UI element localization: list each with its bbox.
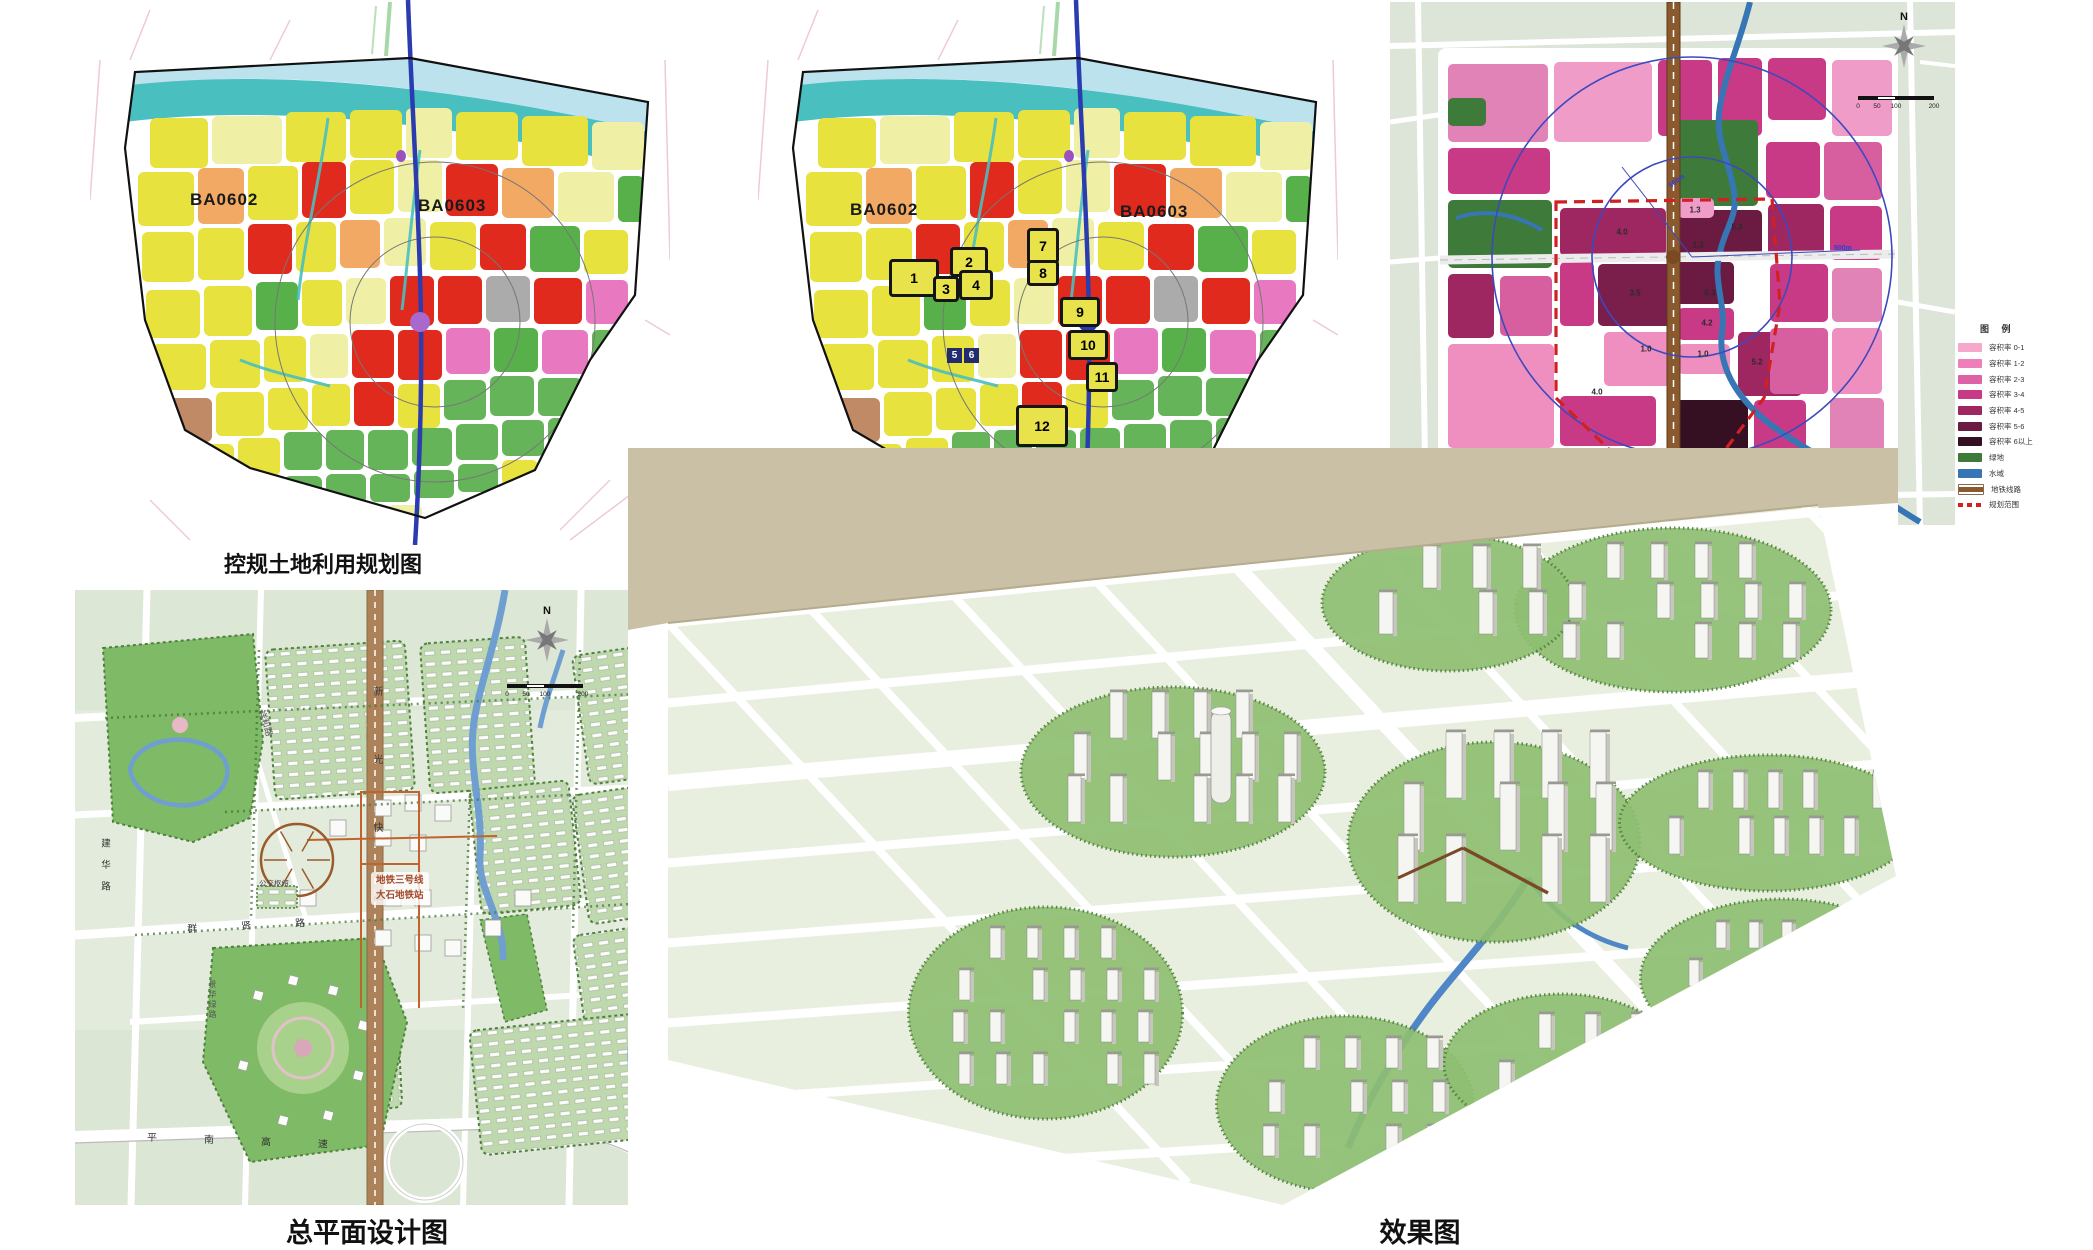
far-value: 4.0 [1591, 388, 1602, 397]
north-compass: N [1882, 12, 1926, 68]
scale-bar: 0 50 100 200 [1858, 96, 1942, 112]
parcel-number-7: 7 [1027, 228, 1059, 264]
far-value: 1.3 [1692, 241, 1703, 250]
intensity-legend: 图 例 容积率 0-1 容积率 1-2 容积率 2-3 容积率 3-4 容积率 … [1958, 322, 2090, 513]
parcel-number-12: 12 [1016, 405, 1068, 447]
legend-item: 规划范围 [1958, 497, 2090, 513]
north-label: N [1882, 12, 1926, 23]
caption-regulatory-plan: 控规土地利用规划图 [123, 547, 523, 579]
far-value: 1.0 [1640, 345, 1651, 354]
radius-label: 500m [1834, 245, 1852, 252]
legend-swatch [1958, 469, 1982, 478]
road-label-xinguang-expressway: 新光快速 [369, 686, 384, 958]
bus-hub-label: 公交枢纽 [259, 878, 289, 889]
legend-item: 绿地 [1958, 450, 2090, 466]
far-value: 5.3 [1731, 223, 1742, 232]
legend-swatch [1958, 359, 1982, 368]
parcel-number-5: 5 [947, 348, 962, 363]
legend-swatch [1958, 500, 1982, 509]
legend-item: 容积率 5-6 [1958, 418, 2090, 434]
metro-station-name: 大石地铁站 [376, 889, 424, 904]
legend-item: 水域 [1958, 466, 2090, 482]
parcel-number-6: 6 [964, 348, 979, 363]
rendering-graphic [628, 448, 1898, 1205]
parcel-number-9: 9 [1060, 297, 1100, 327]
legend-swatch [1958, 453, 1982, 462]
block-label-ba0602: BA0602 [850, 200, 918, 220]
north-compass: N [525, 606, 569, 662]
metro-station-label: 地铁三号线 大石地铁站 [371, 872, 429, 905]
legend-swatch [1958, 343, 1982, 352]
legend-swatch [1958, 406, 1982, 415]
regulatory-plan-panel: BA0602 BA0603 [90, 0, 670, 545]
parcel-number-1: 1 [889, 259, 939, 297]
far-value: 5.3 [1704, 289, 1715, 298]
legend-item: 容积率 3-4 [1958, 387, 2090, 403]
legend-item: 容积率 2-3 [1958, 371, 2090, 387]
legend-swatch [1958, 437, 1982, 446]
far-value: 1.0 [1697, 350, 1708, 359]
far-value: 1.3 [1689, 206, 1700, 215]
planning-sheet: BA0602 BA0603 控规土地利用规划图 BA0602 BA0603 1 … [0, 0, 2093, 1250]
compass-rose-icon [1882, 24, 1926, 68]
legend-item: 容积率 4-5 [1958, 403, 2090, 419]
metro-line-name: 地铁三号线 [376, 874, 424, 889]
far-value: 4.2 [1701, 319, 1712, 328]
legend-swatch [1958, 390, 1982, 399]
block-label-ba0603: BA0603 [1120, 202, 1188, 222]
road-label-jianhua: 建华路 [97, 838, 111, 903]
parcel-number-11: 11 [1086, 362, 1118, 392]
intensity-zoning-panel: 4.0 5.3 1.3 1.3 3.5 5.3 4.2 1.0 1.0 5.2 … [1390, 2, 1955, 525]
parcel-number-8: 8 [1027, 260, 1059, 286]
compass-rose-icon [525, 618, 569, 662]
rendering-panel [628, 448, 1898, 1205]
far-value: 3.5 [1629, 289, 1640, 298]
parcel-number-3: 3 [933, 276, 959, 302]
road-label-jinghua: 景华绿路 [207, 980, 218, 1020]
caption-rendering: 效果图 [1220, 1211, 1620, 1250]
parcel-number-10: 10 [1068, 330, 1108, 360]
block-label-ba0603: BA0603 [418, 196, 486, 216]
legend-item: 地铁线路 [1958, 481, 2090, 497]
regulatory-plan-map-graphic [90, 0, 670, 545]
intensity-zoning-map-graphic [1390, 2, 1955, 525]
scale-bar: 0 50 100 200 [507, 684, 591, 700]
legend-item: 容积率 6以上 [1958, 434, 2090, 450]
legend-swatch [1958, 484, 1984, 495]
legend-item: 容积率 0-1 [1958, 340, 2090, 356]
legend-swatch [1958, 422, 1982, 431]
north-label: N [525, 606, 569, 617]
legend-swatch [1958, 375, 1982, 384]
far-value: 4.0 [1616, 228, 1627, 237]
legend-title: 图 例 [1980, 322, 2090, 335]
far-value: 5.2 [1751, 358, 1762, 367]
legend-item: 容积率 1-2 [1958, 356, 2090, 372]
caption-master-plan: 总平面设计图 [167, 1211, 567, 1250]
block-label-ba0602: BA0602 [190, 190, 258, 210]
parcel-number-4: 4 [959, 270, 993, 300]
